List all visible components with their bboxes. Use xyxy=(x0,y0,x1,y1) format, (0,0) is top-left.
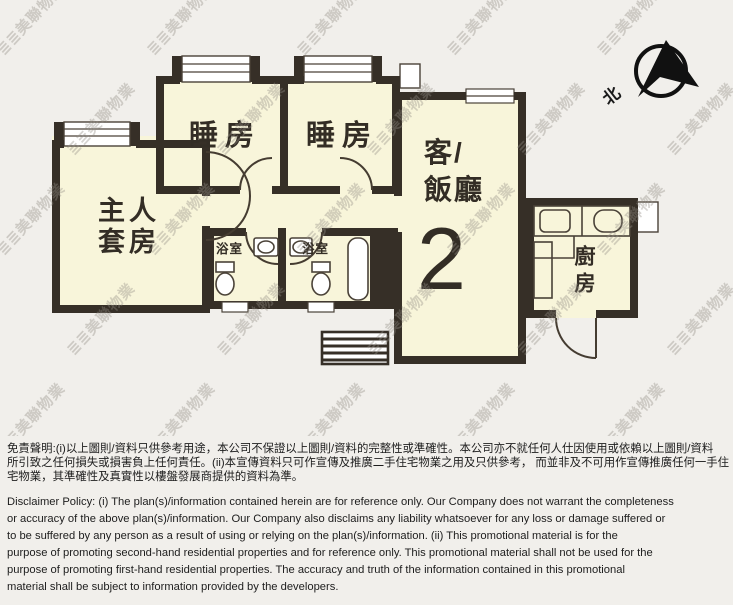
disclaimer-zh-line-2: 所引致之任何損失或損害負上任何責任。(ii)本宣傳資料只可作宣傳及推廣二手住宅物… xyxy=(7,456,729,470)
room-label-kitchen: 廚房 xyxy=(568,245,598,299)
room-label-bathroom-1: 浴室 xyxy=(216,238,243,257)
disclaimer-section: 免責聲明:(i)以上圖則/資料只供參考用途，本公司不保證以上圖則/資料的完整性或… xyxy=(7,442,729,595)
disclaimer-en-line-5: purpose of promoting first-hand resident… xyxy=(7,562,729,579)
disclaimer-zh-line-1: 免責聲明:(i)以上圖則/資料只供參考用途，本公司不保證以上圖則/資料的完整性或… xyxy=(7,442,729,456)
room-label-bedroom-1: 睡房 xyxy=(189,112,261,154)
disclaimer-zh-line-3: 宅物業，其準確性及真實性以樓盤發展商提供的資料為準。 xyxy=(7,470,729,484)
compass-north-icon xyxy=(636,40,699,97)
room-label-master-suite: 主人 套房 xyxy=(98,196,160,258)
disclaimer-en-line-2: or accuracy of the above plan(s)/informa… xyxy=(7,511,729,528)
entrance-steps xyxy=(322,332,388,364)
room-label-living-dining: 客/ 飯廳 xyxy=(424,134,484,208)
disclaimer-en-line-4: purpose of promoting second-hand residen… xyxy=(7,545,729,562)
floor-plan-page: 主人 套房 睡房 睡房 客/ 飯廳 浴室 浴室 廚房 2 北 ≣≣美聯物業≣≣美… xyxy=(0,0,733,605)
master-suite-line1: 主人 xyxy=(98,196,160,227)
disclaimer-en-line-1: Disclaimer Policy: (i) The plan(s)/infor… xyxy=(7,494,729,511)
disclaimer-en-line-6: material shall be subject to information… xyxy=(7,579,729,596)
living-dining-line2: 飯廳 xyxy=(424,171,484,208)
disclaimer-en-line-3: to be suffered by any person as a result… xyxy=(7,528,729,545)
room-label-bedroom-2: 睡房 xyxy=(306,112,378,154)
master-suite-line2: 套房 xyxy=(98,227,160,258)
unit-number-label: 2 xyxy=(417,213,466,305)
living-dining-line1: 客/ xyxy=(424,134,484,171)
room-label-bathroom-2: 浴室 xyxy=(302,238,329,257)
